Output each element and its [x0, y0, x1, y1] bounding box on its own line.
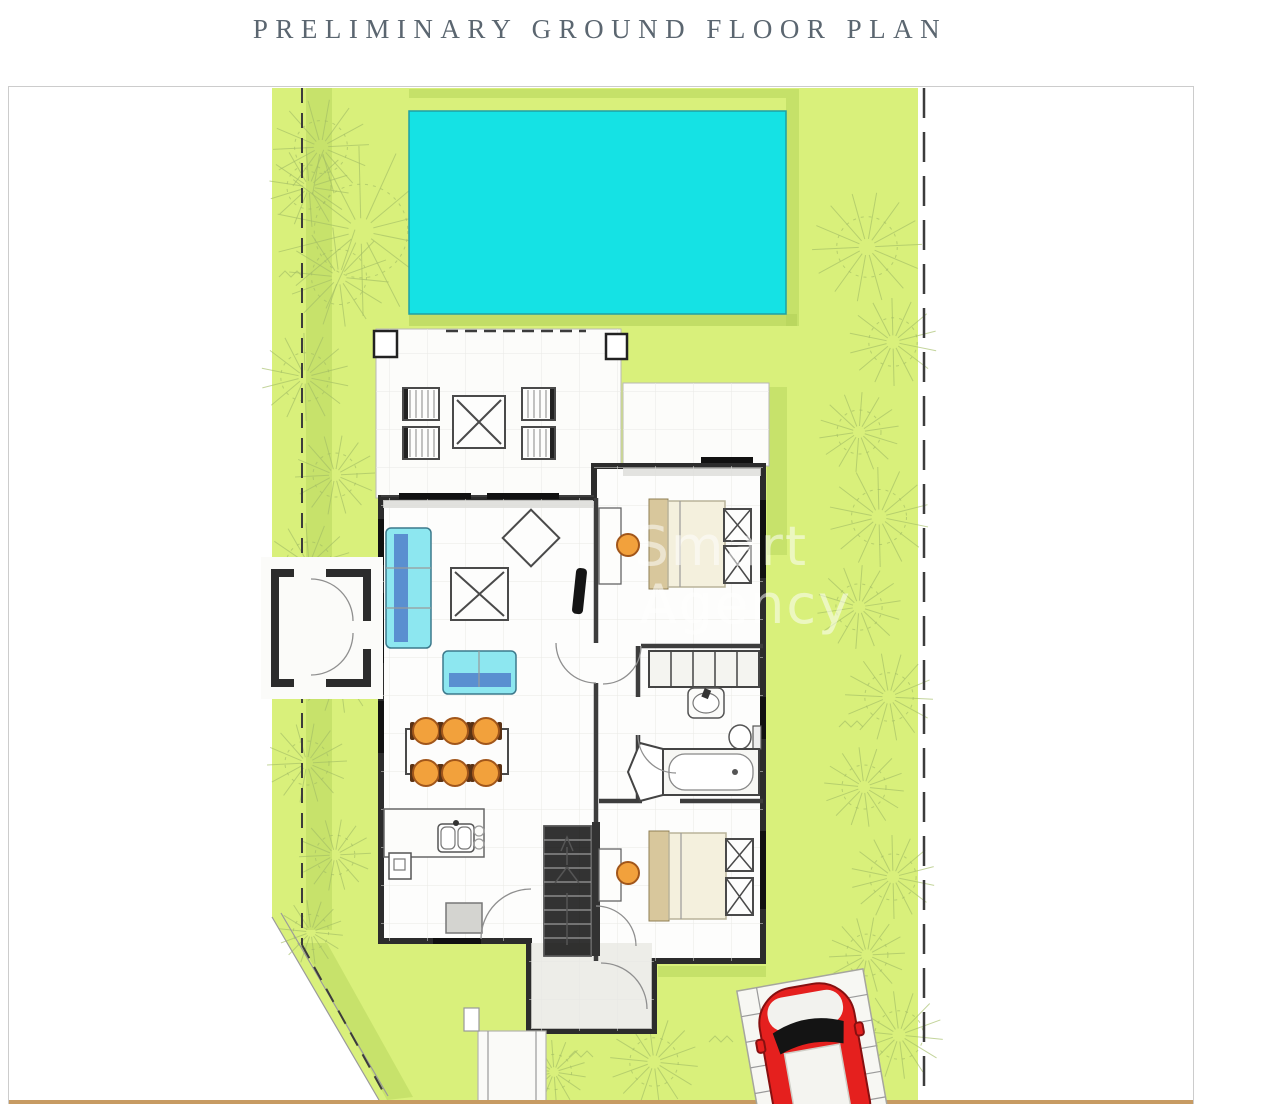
double-bed [669, 833, 726, 919]
wardrobe [649, 651, 759, 687]
bedroom1-slab [623, 383, 769, 466]
window-bar [378, 701, 384, 753]
stool [617, 862, 639, 884]
sun-lounger [522, 427, 555, 459]
house-shadow-bottom [658, 966, 766, 977]
house-shadow-right [767, 387, 787, 555]
hedge-strip [306, 88, 332, 930]
bedside-table [726, 839, 753, 871]
terrace-post [606, 334, 627, 359]
sun-lounger [403, 427, 439, 459]
kitchen-sink [438, 820, 474, 852]
bathtub [628, 743, 759, 801]
pool-shadow-bottom [409, 314, 797, 326]
site-plan-drawing [9, 87, 1193, 1104]
sliding-door-bar [399, 493, 471, 499]
stool [617, 534, 639, 556]
utility-box [464, 1008, 479, 1031]
glass-shade-band [383, 500, 593, 508]
sliding-door-bar [487, 493, 559, 499]
ground-strip [9, 1100, 1193, 1104]
headboard [649, 831, 669, 921]
bedside-table [724, 546, 751, 583]
bedside-table [726, 878, 753, 915]
kitchen-appliance [389, 853, 411, 879]
side-mirror [854, 1022, 864, 1036]
sofa [386, 528, 431, 648]
side-mirror [756, 1039, 766, 1053]
window-bar [433, 938, 481, 944]
car-roof [784, 1044, 851, 1104]
sun-lounger [403, 388, 439, 420]
swimming-pool [409, 111, 786, 314]
window-bar [701, 457, 753, 463]
sun-lounger [522, 388, 555, 420]
outdoor-table [453, 396, 505, 448]
bedside-table [724, 509, 751, 541]
pool-shadow-right [786, 98, 799, 326]
double-bed [668, 501, 725, 587]
loveseat [443, 651, 516, 694]
floor-plan-page: PRELIMINARY GROUND FLOOR PLAN [0, 0, 1280, 1104]
dining-area [406, 718, 508, 786]
plan-frame: Smart Agency [8, 86, 1194, 1104]
window-bar [760, 831, 766, 909]
bedroom1-shade-band [623, 468, 761, 476]
washbasin [688, 688, 724, 718]
kitchen-island [446, 903, 482, 933]
toilet [729, 725, 761, 749]
pool-back-shadow [409, 89, 799, 98]
window-bar [760, 500, 766, 578]
headboard [649, 499, 668, 589]
entrance-gate [261, 557, 383, 699]
terrace-post [374, 331, 397, 357]
page-title: PRELIMINARY GROUND FLOOR PLAN [8, 14, 1192, 45]
coffee-table [451, 568, 508, 620]
